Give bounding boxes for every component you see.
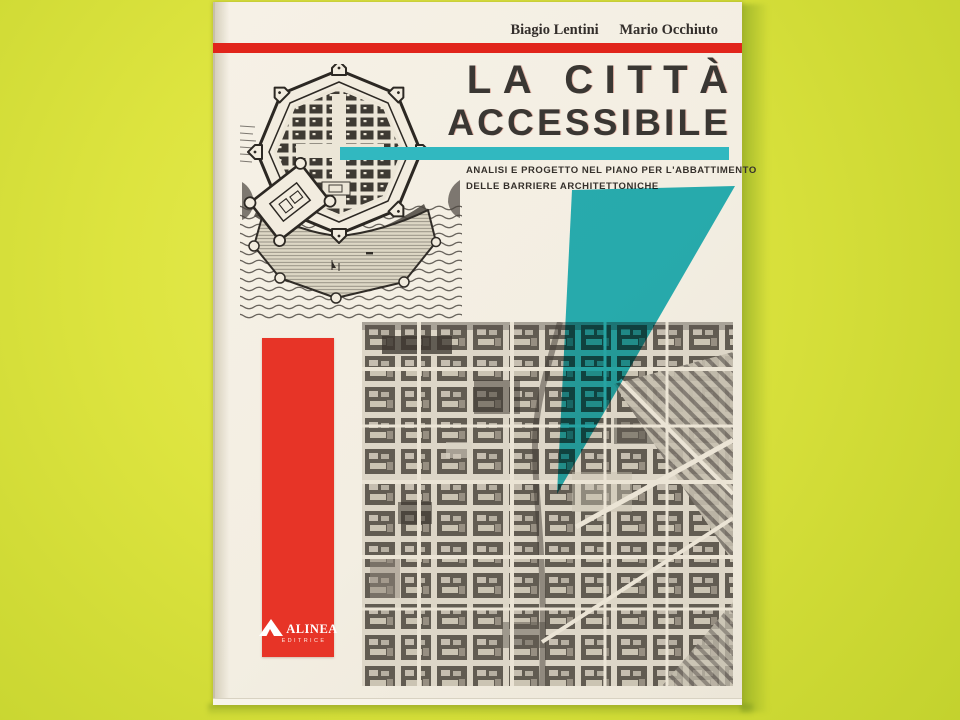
teal-rule [340, 147, 729, 160]
alinea-triangle-a-icon [258, 618, 284, 637]
author-biagio-lentini: Biagio Lentini [510, 22, 598, 38]
publisher-tagline: EDITRICE [270, 638, 327, 644]
red-rule [213, 43, 742, 53]
book-title: LA CITTÀ ACCESSIBILE [447, 58, 728, 144]
page-edges-bottom [213, 698, 742, 705]
publisher-name: ALINEA [286, 622, 338, 637]
publisher-logo: ALINEA EDITRICE [262, 618, 334, 644]
photo-of-book-on-green-background: { "scene": { "description": "Photograph … [0, 0, 960, 720]
fortified-city-engraving [240, 64, 462, 320]
title-line-2: ACCESSIBILE [447, 102, 731, 144]
fortified-city-engraving-svg [240, 64, 462, 320]
title-line-1: LA CITTÀ [447, 58, 739, 102]
book-shadow-bottom [208, 704, 753, 716]
teal-wedge [543, 178, 743, 498]
red-box: ALINEA EDITRICE [262, 338, 334, 657]
page-edges-left [213, 2, 231, 705]
author-line: Biagio Lentini Mario Occhiuto [510, 22, 718, 39]
author-mario-occhiuto: Mario Occhiuto [619, 22, 718, 38]
book-shadow-right [741, 4, 769, 712]
book-cover: Biagio Lentini Mario Occhiuto LA CITTÀ A… [213, 2, 742, 705]
subtitle-line-1: ANALISI E PROGETTO NEL PIANO PER L'ABBAT… [466, 163, 757, 179]
